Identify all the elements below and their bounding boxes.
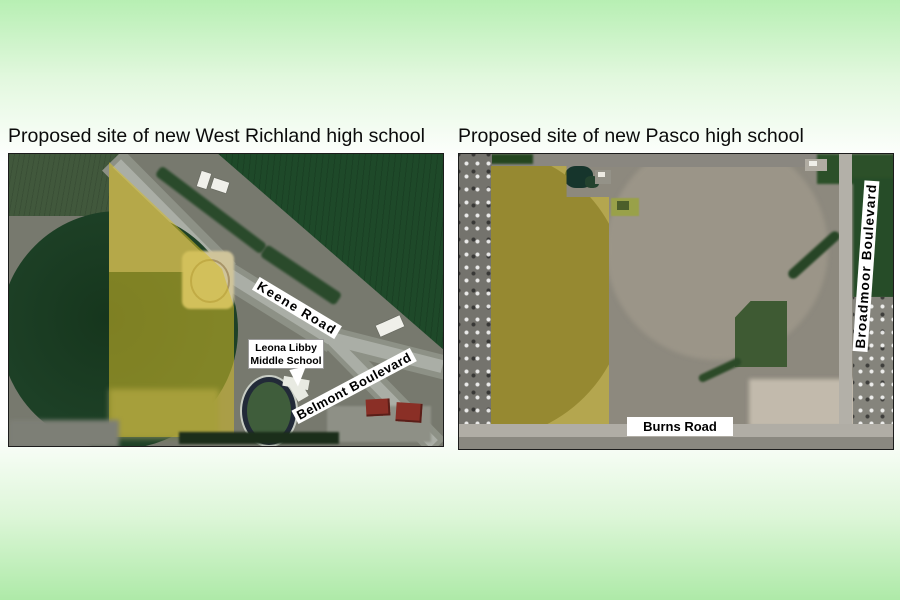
dirt-circle-field (606, 153, 828, 360)
barn-building (211, 178, 230, 193)
field-green-topleft (9, 154, 119, 216)
left-map-aerial-image: Keene Road Leona Libby Middle School Bel… (8, 153, 444, 447)
leona-libby-label-line2: Middle School (249, 355, 323, 368)
highlight-tint (491, 166, 609, 424)
house-building-roof (598, 172, 605, 177)
right-panel-title: Proposed site of new Pasco high school (458, 122, 804, 150)
ground-below-burns-road (459, 437, 894, 450)
bare-ground (9, 420, 119, 447)
leona-libby-middle-school-label: Leona Libby Middle School (248, 339, 324, 369)
tree-line (697, 357, 742, 384)
leona-libby-label-pointer (289, 366, 309, 387)
red-roof-building (366, 398, 391, 416)
garden-trees (617, 201, 629, 210)
leona-libby-label-line1: Leona Libby (249, 342, 323, 355)
right-map-aerial-image: Burns Road Broadmoor Boulevard (458, 153, 894, 450)
barn-building (197, 171, 211, 189)
page: Proposed site of new West Richland high … (0, 0, 900, 600)
farm-building-roof (809, 161, 817, 166)
burns-road-label: Burns Road (627, 417, 733, 436)
small-green-field (735, 301, 787, 367)
red-roof-building (395, 402, 422, 423)
hedge-row (179, 432, 339, 444)
left-panel-title: Proposed site of new West Richland high … (8, 122, 425, 150)
broadmoor-boulevard-road (839, 154, 852, 450)
warehouse-building (376, 315, 405, 337)
proposed-site-highlight (491, 166, 609, 424)
residential-area-west (459, 154, 492, 450)
